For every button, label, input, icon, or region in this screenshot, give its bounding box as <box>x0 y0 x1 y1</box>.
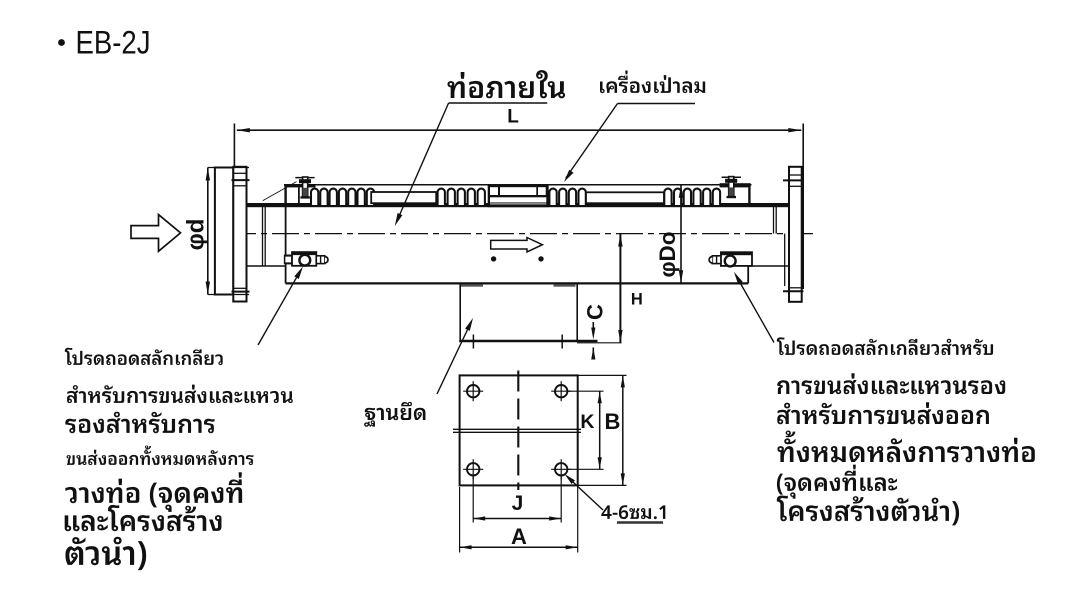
svg-text:C: C <box>583 304 608 320</box>
svg-text:K: K <box>580 411 594 433</box>
svg-text:A: A <box>511 524 527 549</box>
svg-text:B: B <box>605 409 621 434</box>
svg-text:L: L <box>507 106 519 127</box>
svg-text:J: J <box>512 492 524 515</box>
svg-text:φd: φd <box>183 219 210 251</box>
svg-text:φDo: φDo <box>655 231 680 277</box>
svg-text:H: H <box>631 291 643 309</box>
svg-text:EB-2J: EB-2J <box>76 25 151 61</box>
